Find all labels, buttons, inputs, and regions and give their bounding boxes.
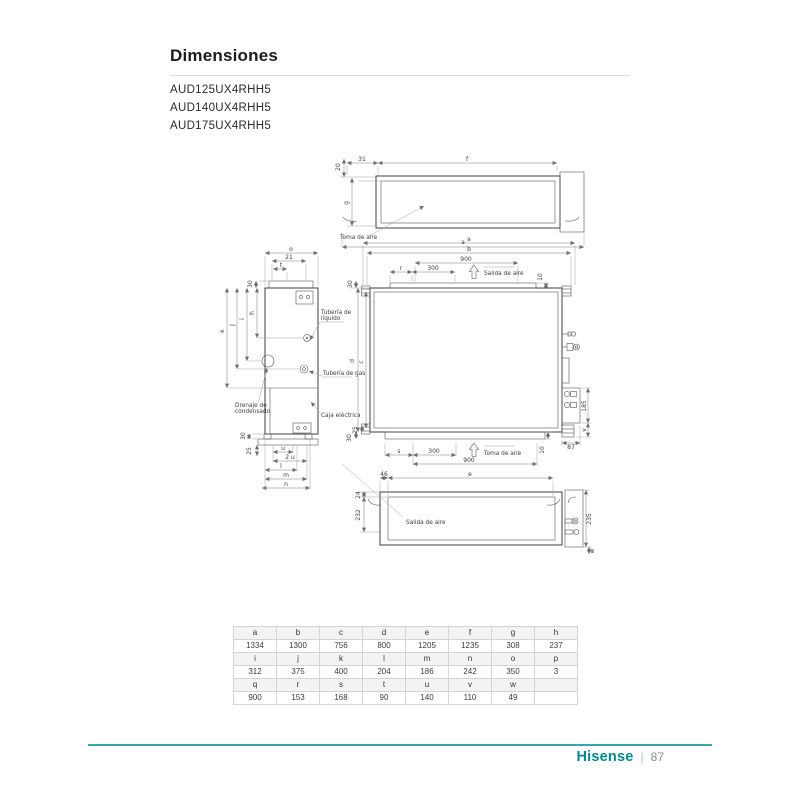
dim-label-25: 25	[246, 447, 253, 455]
table-header-row: ijklmnop	[234, 653, 578, 666]
dim-value-cell: 242	[449, 666, 492, 679]
unit-body	[265, 288, 318, 434]
page-title: Dimensiones	[170, 46, 278, 66]
base-plate	[258, 439, 318, 445]
dim-label-c: c	[358, 360, 365, 363]
unit-body	[376, 176, 560, 228]
dim-value-cell: 153	[277, 692, 320, 705]
side-tab	[560, 172, 584, 232]
annotation-liquid-pipe: Tubería de	[320, 309, 352, 316]
annotation-gas-pipe: Tubería de gas	[322, 370, 365, 377]
dim-value-cell: 312	[234, 666, 277, 679]
page-number: 87	[651, 750, 664, 764]
dim-label-185: 185	[581, 400, 588, 412]
footer-divider	[88, 744, 712, 746]
dim-key-cell: e	[406, 627, 449, 640]
dim-label-u: u	[281, 445, 285, 452]
footer: Hisense | 87	[577, 749, 665, 765]
table-value-row: 1334130075680012051235308237	[234, 640, 578, 653]
dim-label-r: r	[400, 265, 403, 272]
annotation-air-intake: Toma de aire	[483, 451, 522, 457]
intake-flange	[385, 432, 545, 439]
table-header-row: qrstuvw	[234, 679, 578, 692]
dim-value-cell: 375	[277, 666, 320, 679]
dim-value-cell: 237	[535, 640, 578, 653]
airflow-arrow-up	[470, 443, 479, 457]
bottom-view: 46 e 24 232 235 w Salida de aire	[342, 464, 596, 554]
dim-label-31: 31	[358, 156, 366, 163]
dim-label-24: 24	[355, 491, 362, 499]
dim-value-cell	[535, 692, 578, 705]
dim-label-30: 30	[247, 280, 254, 288]
hanger-hook	[565, 217, 579, 221]
dim-label-30b: 30	[346, 434, 353, 442]
dim-label-235: 235	[586, 513, 593, 525]
dim-label-300b: 300	[428, 448, 440, 455]
hanger-hook	[547, 499, 560, 505]
dim-label-21: 21	[285, 254, 293, 261]
dim-value-cell: 168	[320, 692, 363, 705]
top-flange	[269, 281, 313, 288]
dim-key-cell: d	[363, 627, 406, 640]
annotation-air-outlet: Salida de aire	[406, 520, 446, 526]
dim-label-o: o	[289, 246, 293, 253]
dim-label-10: 10	[537, 273, 544, 281]
table-value-row: 3123754002041862423503	[234, 666, 578, 679]
airflow-arrow-up	[470, 265, 479, 279]
dim-label-m: m	[283, 472, 289, 479]
dim-value-cell: 308	[492, 640, 535, 653]
dim-value-cell: 90	[363, 692, 406, 705]
dim-label-h: h	[249, 311, 256, 315]
dim-label-300: 300	[427, 265, 439, 272]
electrical-box	[562, 388, 580, 423]
foot	[264, 434, 271, 439]
dim-key-cell: u	[406, 679, 449, 692]
dim-label-l: l	[280, 463, 282, 470]
foot	[305, 434, 312, 439]
dim-label-g: g	[343, 201, 350, 205]
dimension-table-body: abcdefgh1334130075680012051235308237ijkl…	[234, 627, 578, 705]
refrigerant-pipes	[562, 332, 580, 351]
model-number: AUD175UX4RHH5	[170, 117, 271, 135]
liquid-pipe-port	[304, 335, 311, 342]
title-divider	[170, 75, 630, 76]
dim-key-cell: f	[449, 627, 492, 640]
model-list: AUD125UX4RHH5 AUD140UX4RHH5 AUD175UX4RHH…	[170, 81, 271, 135]
dim-key-cell: l	[363, 653, 406, 666]
dimension-table: abcdefgh1334130075680012051235308237ijkl…	[233, 626, 578, 705]
dim-value-cell: 110	[449, 692, 492, 705]
gas-pipe-port	[300, 365, 308, 373]
dim-label-a: a	[467, 236, 471, 243]
hanger-hook	[343, 217, 357, 221]
dim-value-cell: 186	[406, 666, 449, 679]
dim-value-cell: 1300	[277, 640, 320, 653]
dim-value-cell: 900	[234, 692, 277, 705]
dim-label-30: 30	[347, 280, 354, 288]
dim-label-20: 20	[335, 163, 342, 171]
manual-page: Dimensiones AUD125UX4RHH5 AUD140UX4RHH5 …	[0, 0, 800, 800]
dimension-drawing: f 31 20 g a Toma de aire	[220, 150, 605, 562]
dim-label-i: i	[239, 318, 246, 320]
dim-value-cell: 1334	[234, 640, 277, 653]
dim-key-cell: i	[234, 653, 277, 666]
dim-value-cell: 756	[320, 640, 363, 653]
top-view: f 31 20 g a Toma de aire	[335, 156, 584, 247]
unit-body	[370, 288, 562, 432]
dim-value-cell: 400	[320, 666, 363, 679]
dim-label-f: f	[466, 156, 469, 163]
dim-value-cell: 1235	[449, 640, 492, 653]
dim-value-cell: 350	[492, 666, 535, 679]
hanger-hook	[368, 499, 381, 505]
annotation-drain: condensado	[235, 409, 271, 415]
dim-key-cell: q	[234, 679, 277, 692]
drain-port	[262, 355, 274, 367]
dim-label-b: b	[467, 246, 471, 253]
electrical-box-outline	[293, 423, 311, 433]
dim-label-s: s	[397, 448, 400, 455]
annotation-electrical-box: Caja eléctrica	[321, 412, 361, 419]
intake-opening	[381, 181, 555, 223]
dim-label-232: 232	[355, 509, 362, 521]
dim-key-cell	[535, 679, 578, 692]
dim-key-cell: g	[492, 627, 535, 640]
dim-value-cell: 3	[535, 666, 578, 679]
dim-label-900b: 900	[463, 457, 475, 464]
dim-key-cell: a	[234, 627, 277, 640]
side-view: o 21 t 30 k j i h 30 25 u 2 u l m n Tube…	[220, 246, 365, 489]
dim-value-cell: 204	[363, 666, 406, 679]
dim-label-k: k	[220, 329, 226, 333]
dim-value-cell: 140	[406, 692, 449, 705]
dim-label-46: 46	[380, 471, 388, 478]
dim-key-cell: b	[277, 627, 320, 640]
dim-key-cell: w	[492, 679, 535, 692]
brand-logo: Hisense	[577, 749, 634, 765]
dim-value-cell: 1205	[406, 640, 449, 653]
dim-key-cell: j	[277, 653, 320, 666]
dim-label-87: 87	[567, 444, 575, 451]
dim-key-cell: h	[535, 627, 578, 640]
dim-value-cell: 49	[492, 692, 535, 705]
model-number: AUD140UX4RHH5	[170, 99, 271, 117]
dim-key-cell: s	[320, 679, 363, 692]
dim-key-cell: p	[535, 653, 578, 666]
dim-label-w: w	[589, 548, 596, 553]
dim-key-cell: n	[449, 653, 492, 666]
dim-label-d: d	[349, 359, 356, 363]
dim-label-30b: 30	[240, 432, 247, 440]
footer-separator: |	[641, 750, 644, 764]
dim-key-cell: k	[320, 653, 363, 666]
table-header-row: abcdefgh	[234, 627, 578, 640]
unit-body	[380, 492, 562, 545]
dim-label-n: n	[284, 481, 288, 488]
dim-key-cell: o	[492, 653, 535, 666]
dim-value-cell: 800	[363, 640, 406, 653]
outlet-flange	[390, 283, 536, 288]
hanger-bracket	[562, 425, 574, 437]
side-notch	[562, 358, 569, 383]
table-value-row: 9001531689014011049	[234, 692, 578, 705]
dim-label-10b: 10	[539, 446, 546, 454]
dim-label-25: 25	[352, 426, 359, 434]
annotation-liquid-pipe: líquido	[321, 315, 341, 322]
pipe-stubs	[565, 518, 579, 535]
dim-key-cell: c	[320, 627, 363, 640]
annotation-air-outlet: Salida de aire	[484, 271, 524, 277]
dim-label-v: v	[581, 428, 588, 432]
dim-key-cell: r	[277, 679, 320, 692]
front-view: a b 900 r 300 10 Salida de aire 30 d c 2…	[346, 236, 591, 465]
outlet-opening	[388, 497, 555, 540]
dim-key-cell: t	[363, 679, 406, 692]
model-number: AUD125UX4RHH5	[170, 81, 271, 99]
dim-key-cell: m	[406, 653, 449, 666]
dim-label-t: t	[280, 262, 283, 269]
hanger-bracket	[562, 286, 571, 296]
dim-label-900: 900	[460, 256, 472, 263]
side-box	[565, 490, 583, 547]
annotation-air-intake: Toma de aire	[339, 235, 378, 241]
dim-label-2u: 2 u	[285, 454, 295, 461]
dim-label-j: j	[229, 324, 236, 327]
dim-label-e: e	[468, 471, 472, 478]
top-connection-box	[296, 291, 313, 304]
dim-key-cell: v	[449, 679, 492, 692]
dim-label-a: a	[461, 239, 465, 246]
